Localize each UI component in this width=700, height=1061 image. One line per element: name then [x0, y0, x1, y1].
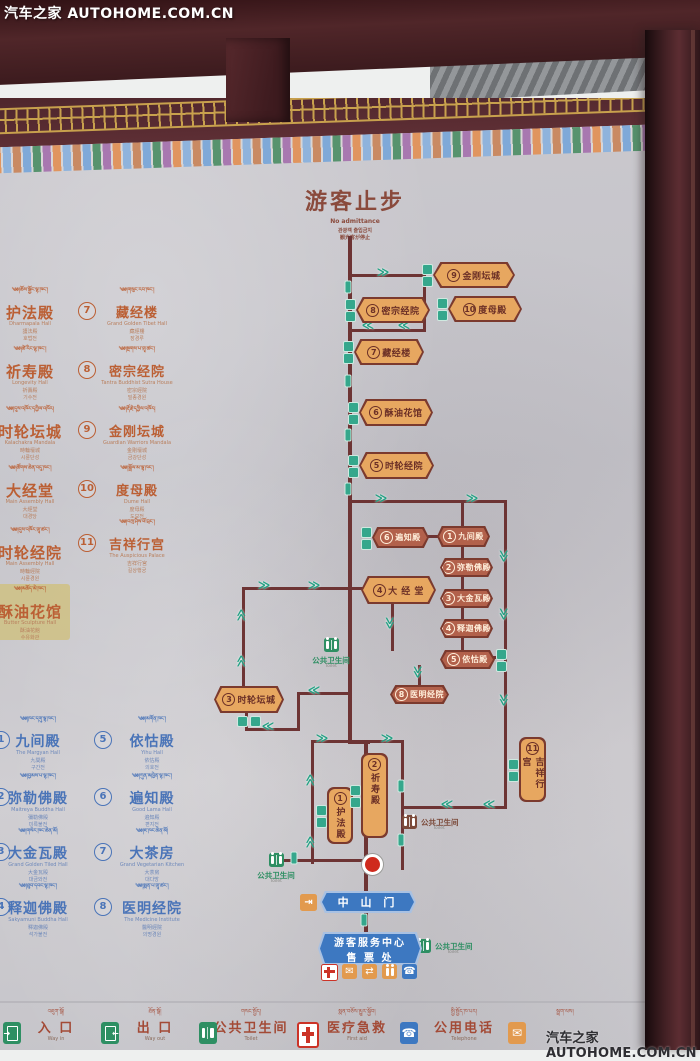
direction-arrow-icon: ≫: [381, 732, 394, 744]
node-face: 9金刚坛城: [435, 264, 513, 286]
node-number: 1: [334, 792, 347, 805]
node-face: 7藏经楼: [356, 341, 422, 363]
node-number: 3: [222, 693, 235, 706]
node-face: 2祈寿殿: [363, 755, 386, 836]
node-face: 5依怙殿: [442, 652, 493, 667]
map-node-遍知殿: 6遍知殿: [372, 527, 429, 548]
map-node-吉祥行宫: 11吉祥行宫: [519, 737, 546, 802]
attach-icon: [437, 310, 448, 321]
attach-icon: [348, 467, 359, 478]
direction-arrow-icon: ≫: [483, 798, 496, 810]
current-location-dot: [362, 854, 383, 875]
map-node-依怙殿: 5依怙殿: [440, 650, 495, 669]
node-number: 4: [442, 622, 455, 635]
path-segment: [461, 546, 464, 559]
exchange-icon: ⇄: [362, 964, 377, 979]
toilet-icon: [199, 1022, 217, 1044]
map-node-时轮坛城: 3时轮坛城: [214, 686, 284, 713]
watermark-bottom-right: 汽车之家 AUTOHOME.COM.CN: [546, 1027, 700, 1061]
path-segment: [350, 500, 507, 503]
direction-arrow-icon: ≫: [498, 550, 510, 563]
node-label: 时轮经院: [385, 459, 423, 472]
node-number: 3: [442, 592, 455, 605]
node-label: 密宗经院: [381, 304, 419, 317]
direction-arrow-icon: ≫: [304, 774, 316, 787]
node-number: 6: [369, 406, 382, 419]
route-marker: [361, 914, 368, 927]
direction-arrow-icon: ≫: [375, 492, 388, 504]
attach-icon: [508, 759, 519, 770]
direction-arrow-icon: ≫: [412, 666, 424, 679]
attach-icon: [422, 276, 433, 287]
footer-item-label: 公用电话: [409, 1017, 519, 1036]
footer-item-english: Toilet: [221, 1036, 281, 1042]
attach-icon: [350, 785, 361, 796]
node-number: 8: [366, 304, 379, 317]
direction-arrow-icon: ≫: [498, 694, 510, 707]
phone-icon: ☎: [402, 964, 417, 979]
node-number: 5: [370, 459, 383, 472]
attach-icon: [343, 341, 354, 352]
map-node-大 经 堂: 4大 经 堂: [361, 576, 436, 604]
footer-item: སྨན་བཅོས་མྱུར་སྐྱོབ།医疗急救First aid: [0, 1002, 2, 1028]
attach-icon: [316, 817, 327, 828]
node-label: 吉祥行宫: [520, 757, 546, 800]
node-face: 3时轮坛城: [216, 688, 282, 711]
direction-arrow-icon: ≫: [466, 492, 479, 504]
map-node-金刚坛城: 9金刚坛城: [433, 262, 515, 288]
direction-arrow-icon: ≫: [441, 798, 454, 810]
map-node-九间殿: 1九间殿: [437, 526, 490, 547]
node-face: 8医明经院: [392, 687, 447, 702]
route-marker: [345, 483, 352, 496]
map-node-藏经楼: 7藏经楼: [354, 339, 424, 365]
route-marker: [345, 375, 352, 388]
node-number: 2: [442, 561, 455, 574]
map-node-时轮经院: 5时轮经院: [359, 452, 434, 479]
attach-icon: [343, 353, 354, 364]
direction-arrow-icon: ≫: [384, 617, 396, 630]
photo-of-monastery-sign: { "watermark": {"top_left": "汽车之家 AUTOHO…: [0, 0, 700, 1050]
node-face: 4释迦佛殿: [442, 621, 491, 636]
attach-icon: [496, 649, 507, 660]
path-segment: [401, 740, 404, 870]
visitors-icon: [382, 964, 397, 979]
sign-board: 游客止步 No admittance 관광객 출입금지 観光客が停止 ༄༅།ཆོ…: [0, 98, 648, 1050]
gate-exit-icon: ⇥: [300, 894, 317, 911]
wooden-post-highlight: [691, 30, 695, 1050]
node-face: 4大 经 堂: [363, 578, 434, 602]
toilet-label-en: Toilet: [316, 664, 346, 669]
mail-icon: ✉: [342, 964, 357, 979]
node-number: 1: [443, 530, 456, 543]
node-label: 祈寿殿: [368, 773, 381, 806]
node-label: 医明经院: [410, 689, 444, 700]
path-segment: [297, 692, 350, 695]
path-segment: [242, 587, 245, 689]
node-face: 11吉祥行宫: [521, 739, 544, 800]
watermark-top-left: 汽车之家 AUTOHOME.COM.CN: [4, 3, 234, 23]
toilet-label-en: Toilet: [433, 826, 445, 831]
toilet-label-en: Toilet: [447, 950, 459, 955]
direction-arrow-icon: ≫: [304, 836, 316, 849]
node-number: 9: [447, 269, 460, 282]
attach-icon: [350, 797, 361, 808]
node-number: 8: [395, 688, 408, 701]
node-face: 5时轮经院: [361, 454, 432, 477]
attach-icon: [348, 455, 359, 466]
map-node-弥勒佛殿: 2弥勒佛殿: [440, 558, 493, 577]
node-label: 酥油花馆: [384, 406, 422, 419]
node-label: 弥勒佛殿: [457, 562, 491, 573]
gate-label: 中 山 门: [338, 894, 399, 910]
map-node-祈寿殿: 2祈寿殿: [361, 753, 388, 838]
footer-item-english: Way out: [125, 1036, 185, 1042]
node-label: 大 经 堂: [388, 584, 424, 597]
node-label: 大金瓦殿: [457, 593, 491, 604]
node-label: 藏经楼: [382, 346, 411, 359]
mail-icon: ✉: [508, 1022, 526, 1044]
node-number: 4: [373, 584, 386, 597]
toilet-icon: [402, 815, 417, 829]
map-node-度母殿: 10度母殿: [448, 296, 522, 322]
node-number: 11: [526, 742, 539, 755]
direction-arrow-icon: ≫: [258, 579, 271, 591]
map-node-护法殿: 1护法殿: [327, 787, 353, 844]
route-marker: [398, 780, 405, 793]
node-label: 度母殿: [478, 303, 507, 316]
map-node-释迦佛殿: 4释迦佛殿: [440, 619, 493, 638]
footer-item-english: Way in: [26, 1036, 86, 1042]
attach-icon: [250, 716, 261, 727]
attach-icon: [496, 661, 507, 672]
path-segment: [461, 637, 464, 651]
footer-item-english: First aid: [327, 1036, 387, 1042]
direction-arrow-icon: ≫: [308, 684, 321, 696]
route-marker: [398, 834, 405, 847]
direction-arrow-icon: ≫: [235, 655, 247, 668]
first-aid-icon: [321, 964, 338, 981]
wooden-hanging-block: [226, 38, 290, 122]
node-face: 1护法殿: [329, 789, 351, 842]
attach-icon: [348, 414, 359, 425]
toilet-icon: [269, 853, 284, 867]
footer-item-english: Telephone: [434, 1036, 494, 1042]
path-segment: [297, 692, 300, 731]
map-node-医明经院: 8医明经院: [390, 685, 449, 704]
path-segment: [461, 576, 464, 590]
first-aid-icon: [297, 1022, 319, 1048]
node-number: 10: [463, 303, 476, 316]
route-marker: [345, 281, 352, 294]
attach-icon: [345, 299, 356, 310]
route-marker: [291, 852, 298, 865]
attach-icon: [361, 539, 372, 550]
direction-arrow-icon: ≫: [235, 609, 247, 622]
direction-arrow-icon: ≫: [262, 720, 275, 732]
zhongshan-gate-banner: 中 山 门: [320, 891, 416, 913]
footer-item-tibetan: སྦྲག་ལས།: [515, 1006, 615, 1021]
node-label: 释迦佛殿: [457, 623, 491, 634]
node-number: 7: [367, 346, 380, 359]
map-node-酥油花馆: 6酥油花馆: [359, 399, 433, 426]
direction-arrow-icon: ≫: [308, 579, 321, 591]
attach-icon: [508, 771, 519, 782]
direction-arrow-icon: ≫: [498, 608, 510, 621]
node-number: 2: [368, 758, 381, 771]
visitor-center-label: 游客服务中心: [334, 934, 406, 949]
node-face: 3大金瓦殿: [442, 591, 491, 606]
attach-icon: [316, 805, 327, 816]
map-node-密宗经院: 8密宗经院: [356, 297, 430, 323]
direction-arrow-icon: ≫: [316, 732, 329, 744]
attach-icon: [237, 716, 248, 727]
toilet-icon: [324, 638, 339, 652]
ticket-office-label: 售 票 处: [347, 949, 394, 964]
node-label: 九间殿: [458, 531, 484, 542]
way-in-icon: →: [3, 1022, 21, 1044]
attach-icon: [437, 298, 448, 309]
attach-icon: [361, 527, 372, 538]
node-face: 8密宗经院: [358, 299, 428, 321]
attach-icon: [345, 311, 356, 322]
node-label: 金刚坛城: [462, 269, 500, 282]
map-node-大金瓦殿: 3大金瓦殿: [440, 589, 493, 608]
route-marker: [345, 429, 352, 442]
direction-arrow-icon: ≫: [377, 266, 390, 278]
way-out-icon: →: [101, 1022, 119, 1044]
node-label: 护法殿: [334, 807, 347, 840]
node-face: 2弥勒佛殿: [442, 560, 491, 575]
node-face: 6酥油花馆: [361, 401, 431, 424]
attach-icon: [422, 264, 433, 275]
path-segment: [461, 500, 464, 527]
node-face: 1九间殿: [439, 528, 488, 545]
visitor-center-banner: 游客服务中心 售 票 处: [318, 932, 422, 965]
path-segment: [461, 607, 464, 620]
node-face: 10度母殿: [450, 298, 520, 320]
node-label: 时轮坛城: [237, 693, 275, 706]
attach-icon: [348, 402, 359, 413]
node-label: 依怙殿: [462, 654, 488, 665]
phone-icon: ☎: [400, 1022, 418, 1044]
node-face: 6遍知殿: [374, 529, 427, 546]
node-label: 遍知殿: [395, 532, 421, 543]
toilet-label-en: Toilet: [261, 879, 291, 884]
node-number: 6: [380, 531, 393, 544]
node-number: 5: [447, 653, 460, 666]
